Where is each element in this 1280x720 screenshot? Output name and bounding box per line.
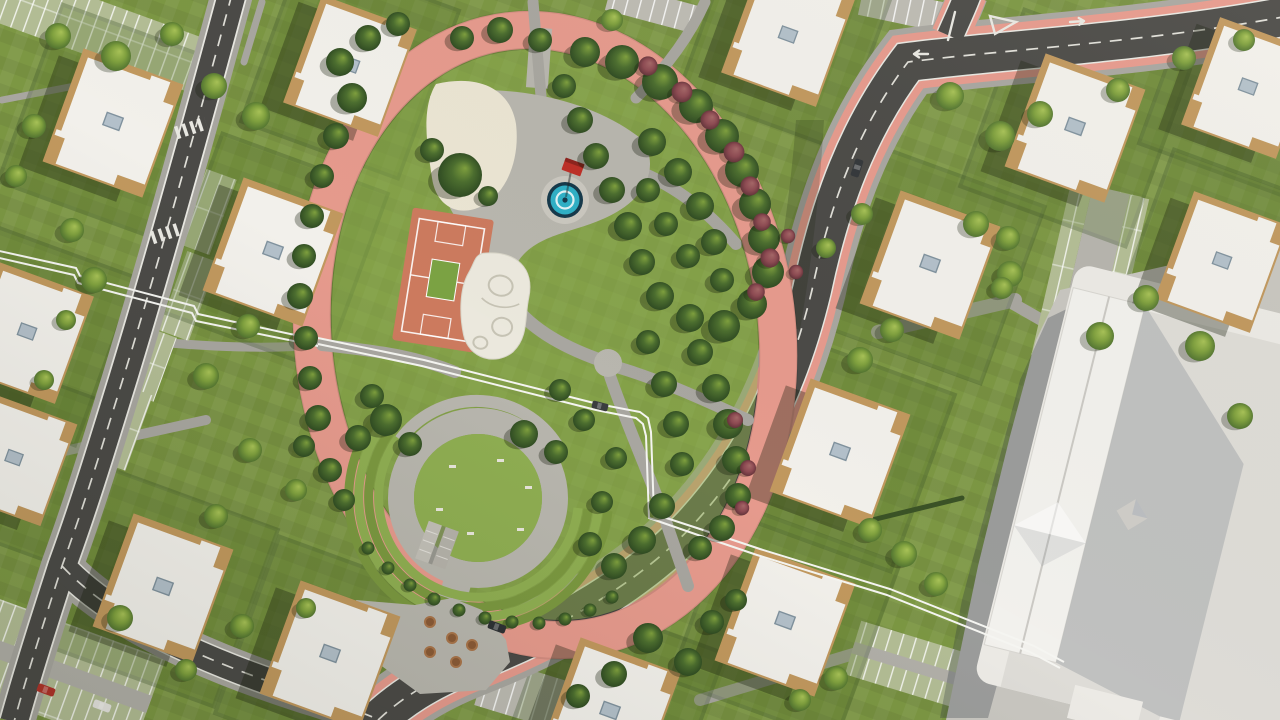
scene-canvas: Aerial 3D masterplan render: residential… [0, 0, 1280, 720]
light-vignette [0, 0, 1280, 720]
aerial-render: Aerial 3D masterplan render: residential… [0, 0, 1280, 720]
